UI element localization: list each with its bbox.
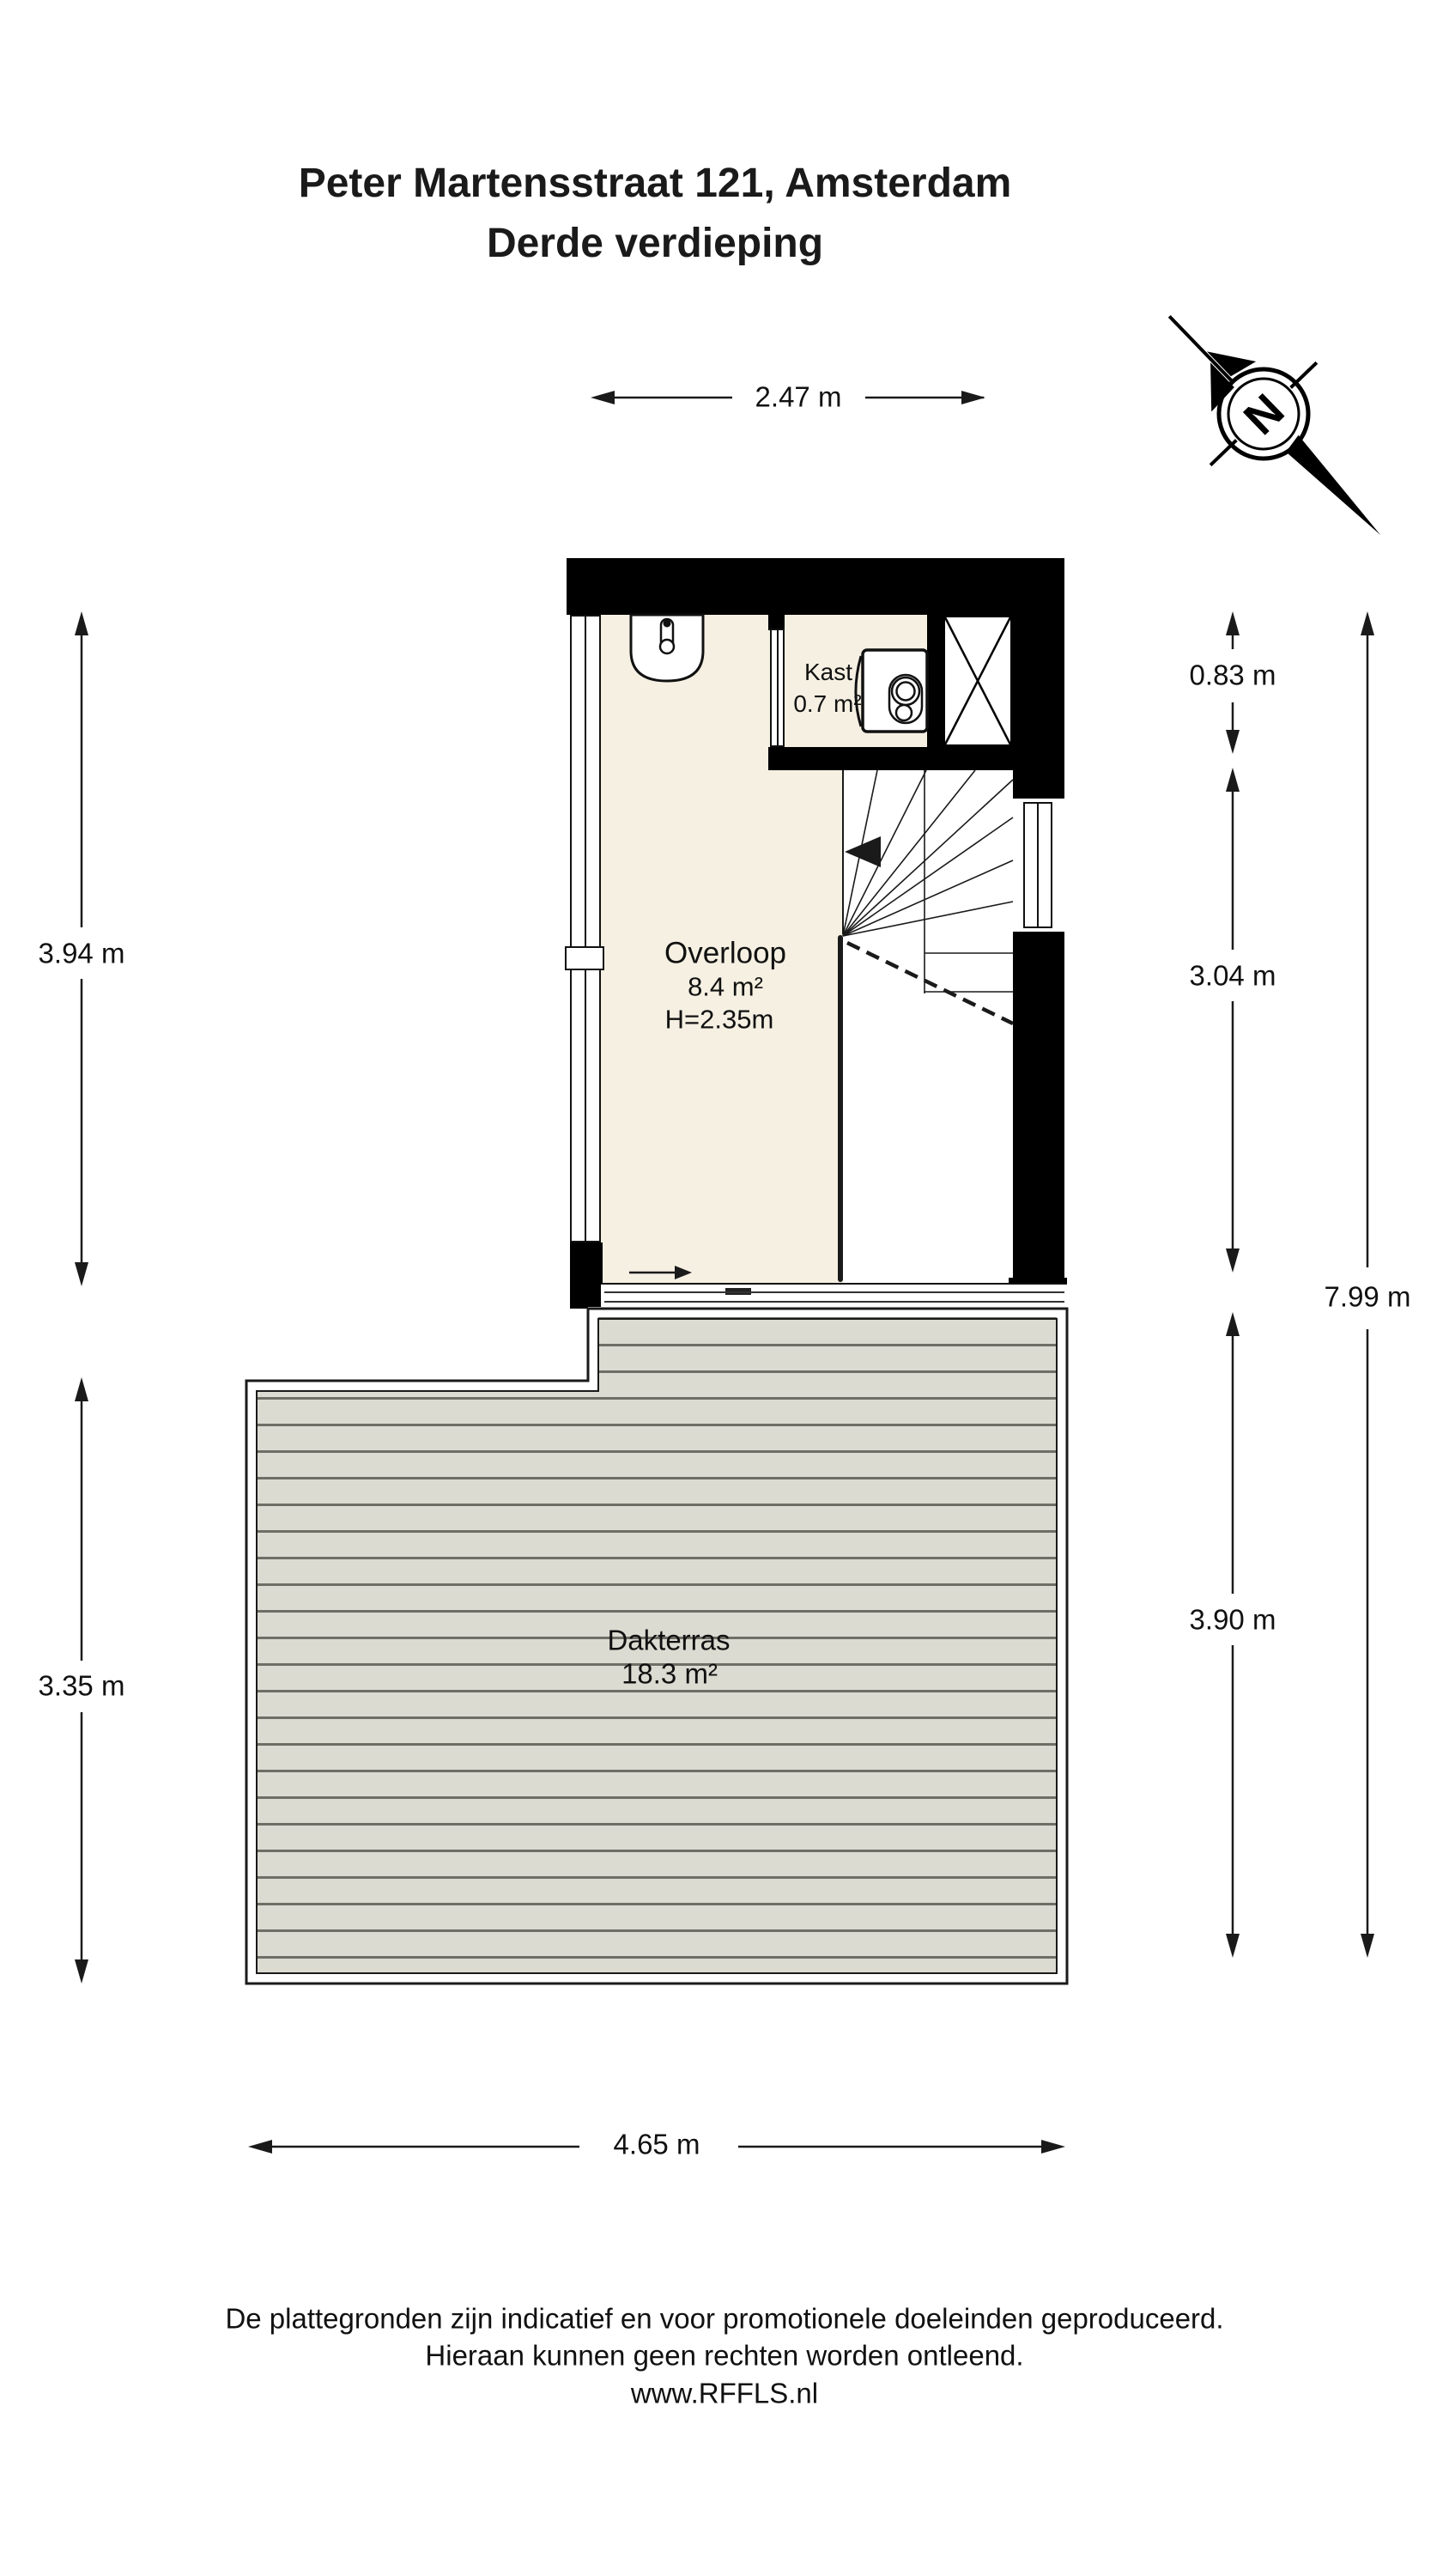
- wall-right-lower: [1013, 932, 1064, 1279]
- dim-right-middle-label: 3.04 m: [1190, 962, 1276, 990]
- compass-north-label: N: [1234, 385, 1294, 445]
- footer-disclaimer-line1: De plattegronden zijn indicatief en voor…: [225, 2305, 1223, 2333]
- dakterras-area-label: 18.3 m²: [621, 1660, 718, 1688]
- sliding-door-band: [601, 1283, 1067, 1309]
- wall-right-upper: [1013, 615, 1064, 799]
- kast-area-label: 0.7 m²: [793, 692, 861, 716]
- kast-partition-glass: [770, 629, 785, 747]
- dim-right-lower-label: 3.90 m: [1190, 1606, 1276, 1634]
- sliding-door-handle: [725, 1288, 751, 1295]
- dim-left-upper-label: 3.94 m: [39, 939, 125, 968]
- dim-top-label: 2.47 m: [755, 383, 842, 411]
- floorplan-page: { "title": { "line1": "Peter Martensstra…: [0, 0, 1449, 2576]
- dim-right-total-label: 7.99 m: [1325, 1283, 1411, 1311]
- compass-wing-right: [1207, 331, 1256, 380]
- footer-disclaimer-line2: Hieraan kunnen geen rechten worden ontle…: [425, 2342, 1023, 2370]
- shaft-box: [943, 615, 1013, 747]
- dakterras-name-label: Dakterras: [607, 1626, 730, 1655]
- stairwell-void: [843, 770, 1013, 1283]
- wall-kast-right: [927, 615, 943, 749]
- compass-tail: [1283, 435, 1387, 543]
- dim-right-upper-label: 0.83 m: [1190, 661, 1276, 690]
- footer-website: www.RFFLS.nl: [631, 2379, 818, 2408]
- compass-icon: N: [1116, 265, 1434, 586]
- overloop-height-label: H=2.35m: [665, 1006, 774, 1033]
- page-title-line2: Derde verdieping: [487, 223, 823, 264]
- wall-left-bottom-stub: [570, 1242, 603, 1309]
- wall-top: [567, 558, 1064, 615]
- overloop-floor-right: [770, 770, 843, 1283]
- dim-right-middle-arrow: [1226, 768, 1240, 1273]
- left-window-sill: [565, 946, 604, 970]
- dim-left-lower-label: 3.35 m: [39, 1672, 125, 1700]
- overloop-area-label: 8.4 m²: [688, 974, 763, 1000]
- wall-below-kast: [768, 747, 1013, 770]
- left-window-upper: [570, 615, 601, 948]
- right-stair-window: [1023, 802, 1052, 928]
- page-title-line1: Peter Martensstraat 121, Amsterdam: [299, 163, 1012, 204]
- kast-name-label: Kast: [804, 660, 852, 684]
- overloop-name-label: Overloop: [664, 939, 786, 969]
- left-window-lower: [570, 969, 601, 1242]
- compass-wing-left: [1186, 362, 1235, 411]
- dim-bottom-label: 4.65 m: [614, 2130, 700, 2159]
